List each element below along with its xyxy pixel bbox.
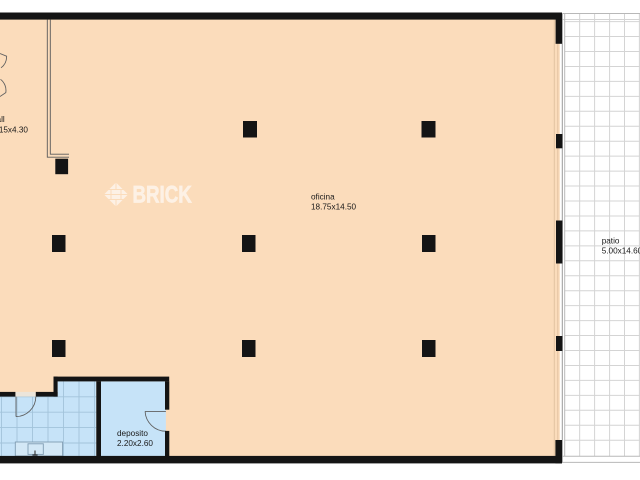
svg-text:deposito: deposito [117, 429, 148, 438]
svg-text:18.75x14.50: 18.75x14.50 [311, 202, 357, 211]
svg-text:hall: hall [0, 115, 5, 124]
svg-text:5.00x14.60: 5.00x14.60 [602, 246, 640, 255]
svg-text:2.20x2.60: 2.20x2.60 [117, 439, 153, 448]
svg-text:patio: patio [602, 237, 620, 246]
svg-text:3.15x4.30: 3.15x4.30 [0, 126, 28, 135]
svg-text:oficina: oficina [311, 192, 335, 201]
svg-text:BRICK: BRICK [133, 181, 193, 208]
